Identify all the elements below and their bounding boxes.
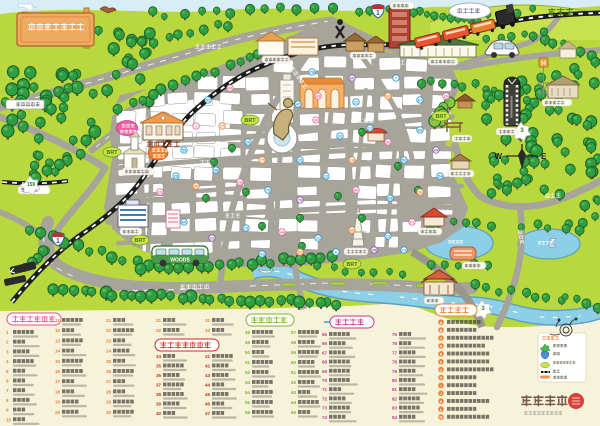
svg-text:BRT: BRT (244, 118, 256, 124)
svg-text:K: K (440, 400, 443, 404)
svg-text:23: 23 (106, 338, 112, 343)
svg-text:A: A (440, 321, 443, 325)
svg-text:35: 35 (156, 364, 162, 369)
svg-text:19: 19 (55, 400, 61, 405)
svg-text:10: 10 (6, 417, 12, 422)
svg-text:BRT: BRT (435, 114, 447, 120)
svg-text:54: 54 (438, 173, 443, 178)
svg-text:80: 80 (354, 187, 359, 192)
svg-text:12: 12 (368, 125, 373, 130)
svg-text:57: 57 (291, 330, 297, 335)
svg-text:32: 32 (205, 318, 211, 323)
svg-text:33: 33 (205, 328, 211, 333)
svg-text:72: 72 (402, 247, 407, 252)
svg-text:24: 24 (106, 349, 112, 354)
svg-text:67: 67 (322, 350, 328, 355)
svg-text:68: 68 (322, 360, 328, 365)
svg-text:68: 68 (350, 227, 355, 232)
svg-text:48: 48 (214, 167, 219, 172)
svg-text:26: 26 (246, 139, 251, 144)
svg-text:37: 37 (156, 383, 162, 388)
svg-text:26: 26 (106, 369, 112, 374)
svg-text:28: 28 (174, 173, 179, 178)
svg-text:44: 44 (280, 229, 285, 234)
svg-text:12: 12 (324, 173, 329, 178)
svg-text:45: 45 (205, 392, 211, 397)
svg-text:28: 28 (106, 389, 112, 394)
svg-text:76: 76 (392, 341, 398, 346)
svg-text:I: I (440, 384, 441, 388)
svg-text:8: 8 (6, 398, 9, 403)
svg-text:82: 82 (392, 396, 398, 401)
svg-text:BRT: BRT (106, 150, 118, 156)
svg-text:29: 29 (106, 400, 112, 405)
svg-text:30: 30 (314, 117, 319, 122)
svg-text:66: 66 (322, 341, 328, 346)
svg-text:5: 5 (6, 369, 9, 374)
svg-text:2: 2 (6, 340, 9, 345)
svg-text:33: 33 (386, 139, 391, 144)
svg-text:60: 60 (182, 219, 187, 224)
svg-text:63: 63 (291, 390, 297, 395)
svg-text:32: 32 (156, 328, 162, 333)
svg-text:55: 55 (182, 147, 187, 152)
svg-text:27: 27 (106, 379, 112, 384)
svg-text:39: 39 (156, 402, 162, 407)
svg-text:D: D (440, 345, 443, 349)
svg-text:63: 63 (388, 195, 393, 200)
svg-text:60: 60 (386, 93, 391, 98)
svg-text:36: 36 (156, 373, 162, 378)
svg-text:7: 7 (6, 388, 9, 393)
svg-text:54: 54 (245, 390, 251, 395)
svg-text:50: 50 (245, 350, 251, 355)
svg-text:46: 46 (205, 402, 211, 407)
svg-text:56: 56 (245, 410, 251, 415)
svg-text:50: 50 (194, 183, 199, 188)
svg-text:78: 78 (392, 360, 398, 365)
svg-text:62: 62 (291, 380, 297, 385)
svg-text:16: 16 (55, 369, 61, 374)
svg-text:70: 70 (322, 378, 328, 383)
svg-text:49: 49 (245, 340, 251, 345)
svg-text:51: 51 (245, 360, 251, 365)
svg-text:55: 55 (245, 400, 251, 405)
svg-text:15: 15 (55, 359, 61, 364)
svg-text:WOODS: WOODS (170, 258, 190, 264)
svg-text:20: 20 (158, 189, 163, 194)
svg-text:48: 48 (245, 330, 251, 335)
svg-text:78: 78 (310, 69, 315, 74)
svg-text:59: 59 (291, 350, 297, 355)
svg-text:84: 84 (392, 415, 398, 420)
svg-text:35: 35 (372, 247, 377, 252)
svg-text:J: J (440, 392, 442, 396)
svg-text:6: 6 (6, 379, 9, 384)
svg-text:17: 17 (55, 379, 61, 384)
svg-text:4: 4 (6, 359, 9, 364)
svg-text:75: 75 (392, 332, 398, 337)
svg-text:38: 38 (156, 392, 162, 397)
svg-text:E: E (440, 353, 443, 357)
svg-text:1: 1 (376, 10, 380, 17)
svg-text:77: 77 (260, 157, 265, 162)
svg-text:60: 60 (350, 75, 355, 80)
svg-text:13: 13 (55, 338, 61, 343)
svg-text:80: 80 (392, 378, 398, 383)
svg-text:20: 20 (55, 410, 61, 415)
svg-text:71: 71 (322, 387, 328, 392)
svg-text:47: 47 (296, 101, 301, 106)
svg-text:81: 81 (392, 387, 398, 392)
svg-text:11: 11 (55, 318, 60, 323)
svg-text:61: 61 (410, 219, 415, 224)
svg-text:65: 65 (322, 332, 328, 337)
svg-text:26: 26 (418, 189, 423, 194)
svg-text:69: 69 (316, 93, 321, 98)
svg-text:E: E (541, 152, 547, 161)
svg-text:18: 18 (55, 389, 61, 394)
svg-text:12: 12 (55, 328, 61, 333)
svg-text:14: 14 (55, 349, 61, 354)
svg-text:W: W (494, 152, 502, 161)
svg-text:79: 79 (392, 369, 398, 374)
svg-text:159: 159 (27, 182, 36, 188)
svg-text:32: 32 (338, 133, 343, 138)
svg-text:23: 23 (210, 235, 215, 240)
svg-text:49: 49 (228, 85, 233, 90)
svg-text:C: C (440, 337, 443, 341)
svg-text:47: 47 (205, 411, 211, 416)
svg-text:41: 41 (260, 251, 265, 256)
svg-text:12: 12 (386, 233, 391, 238)
svg-text:1: 1 (6, 330, 9, 335)
svg-text:21: 21 (106, 318, 112, 323)
svg-text:BRT: BRT (134, 238, 146, 244)
svg-text:34: 34 (156, 354, 162, 359)
svg-text:53: 53 (245, 380, 251, 385)
svg-text:B: B (440, 329, 443, 333)
svg-text:83: 83 (392, 406, 398, 411)
svg-text:64: 64 (291, 400, 297, 405)
svg-text:77: 77 (392, 350, 398, 355)
svg-text:79: 79 (298, 197, 303, 202)
svg-text:23: 23 (298, 157, 303, 162)
svg-text:50: 50 (402, 157, 407, 162)
svg-text:76: 76 (266, 187, 271, 192)
svg-text:1: 1 (56, 238, 60, 245)
svg-text:31: 31 (156, 318, 162, 323)
svg-text:44: 44 (205, 383, 211, 388)
svg-text:58: 58 (291, 340, 297, 345)
svg-text:73: 73 (322, 406, 328, 411)
svg-text:H: H (541, 61, 546, 68)
svg-text:42: 42 (205, 364, 211, 369)
svg-text:22: 22 (106, 328, 112, 333)
svg-text:26: 26 (444, 93, 449, 98)
svg-text:9: 9 (6, 408, 9, 413)
svg-text:BRT: BRT (346, 262, 358, 268)
svg-text:52: 52 (206, 97, 211, 102)
svg-text:68: 68 (418, 127, 423, 132)
svg-text:65: 65 (291, 410, 297, 415)
svg-text:69: 69 (322, 369, 328, 374)
svg-text:72: 72 (322, 396, 328, 401)
svg-text:74: 74 (322, 415, 328, 420)
svg-text:G: G (440, 368, 443, 372)
svg-text:H: H (440, 376, 443, 380)
svg-text:28: 28 (238, 179, 243, 184)
svg-text:18: 18 (350, 157, 355, 162)
svg-text:67: 67 (418, 97, 423, 102)
svg-text:M: M (439, 416, 442, 420)
svg-text:69: 69 (434, 147, 439, 152)
svg-text:40: 40 (156, 411, 162, 416)
svg-text:27: 27 (220, 123, 225, 128)
svg-text:3: 3 (6, 349, 9, 354)
svg-text:61: 61 (291, 370, 297, 375)
svg-text:73: 73 (244, 225, 249, 230)
svg-text:30: 30 (106, 410, 112, 415)
svg-text:43: 43 (205, 373, 211, 378)
svg-text:52: 52 (245, 370, 251, 375)
svg-text:60: 60 (291, 360, 297, 365)
svg-text:52: 52 (298, 249, 303, 254)
svg-text:41: 41 (205, 354, 211, 359)
svg-text:25: 25 (106, 359, 112, 364)
